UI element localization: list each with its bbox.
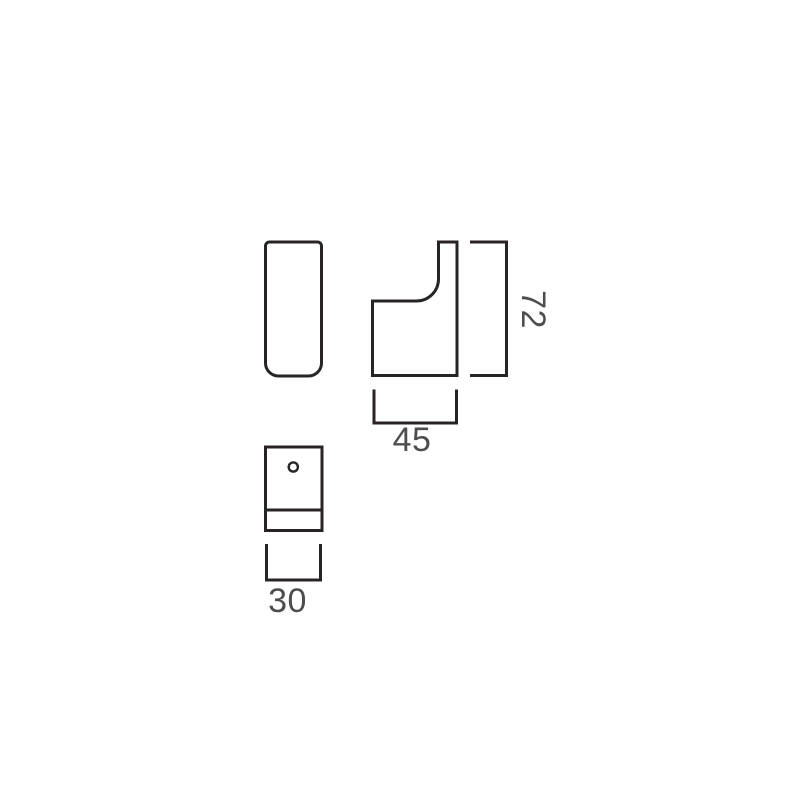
dimension-height-label: 72 bbox=[514, 290, 552, 329]
fixing-hole-icon bbox=[289, 462, 298, 471]
dimension-depth: 30 bbox=[267, 544, 321, 620]
technical-drawing: 72 45 30 bbox=[0, 0, 800, 800]
dimension-depth-label: 30 bbox=[268, 582, 307, 620]
dimension-height-bracket bbox=[470, 242, 507, 376]
dimension-width-label: 45 bbox=[393, 421, 432, 459]
dimension-height: 72 bbox=[470, 242, 552, 376]
front-view bbox=[266, 242, 322, 376]
front-view-outline bbox=[266, 242, 322, 376]
top-view-outline bbox=[266, 447, 323, 531]
side-view bbox=[373, 242, 458, 376]
dimension-width: 45 bbox=[374, 390, 457, 460]
drawing-canvas: 72 45 30 bbox=[0, 0, 800, 800]
dimension-width-bracket bbox=[374, 390, 457, 424]
side-view-outline bbox=[373, 242, 458, 376]
dimension-depth-bracket bbox=[267, 544, 321, 580]
top-view bbox=[266, 447, 323, 531]
